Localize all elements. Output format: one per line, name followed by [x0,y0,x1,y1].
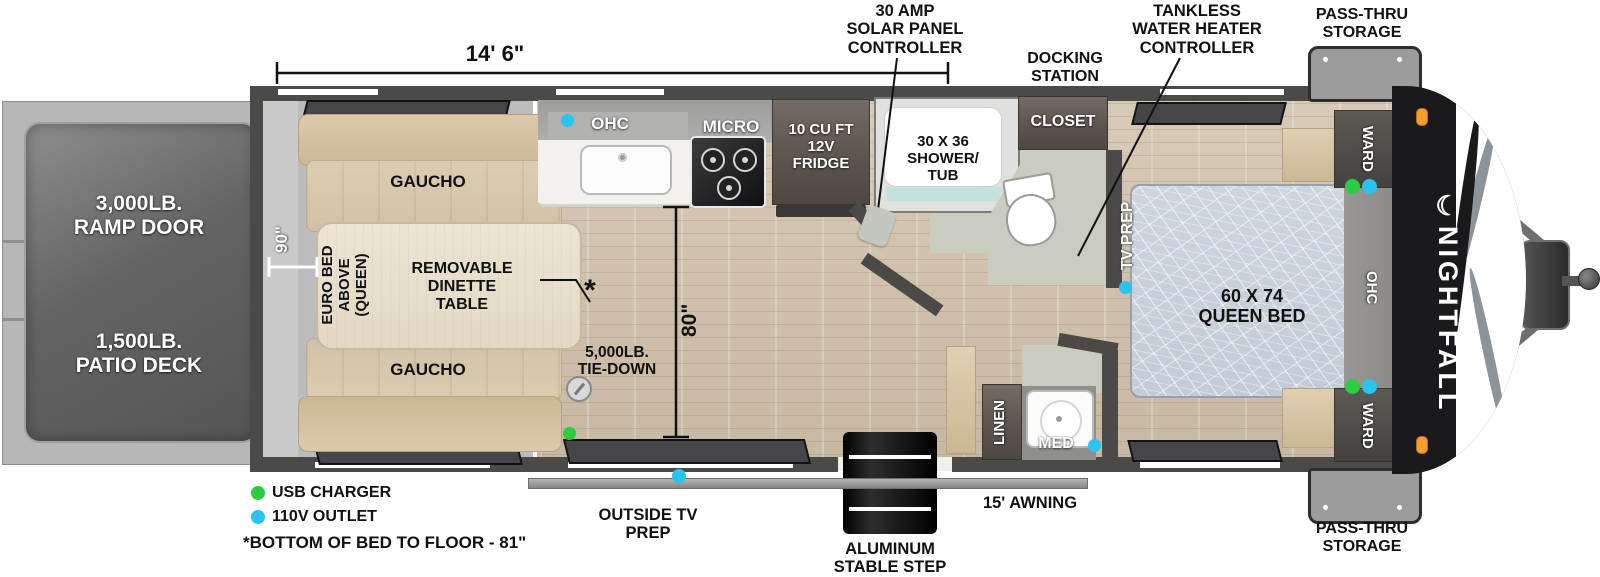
pass-thru-top-label: PASS-THRU STORAGE [1290,6,1434,42]
usb-charger-dot [1345,379,1360,394]
legend-usb-label: USB CHARGER [272,484,412,502]
legend-usb-dot-icon [251,486,265,500]
dinette-footnote-leader [540,280,590,302]
usb-charger-dot [1345,179,1360,194]
110v-outlet-dot [1088,439,1101,452]
legend-outlet-dot-icon [251,510,265,524]
110v-outlet-dot [672,469,686,483]
legend-outlet-label: 110V OUTLET [272,508,412,526]
tankless-callout: TANKLESS WATER HEATER CONTROLLER [1118,2,1276,57]
110v-outlet-dot [1119,281,1132,294]
floorplan-diagram: 3,000LB. RAMP DOOR 1,500LB. PATIO DECK G… [0,0,1600,577]
usb-charger-dot [563,427,576,440]
outside-tv-label: OUTSIDE TV PREP [578,506,718,543]
solar-leader-line [877,58,897,218]
docking-station-label: DOCKING STATION [1005,50,1125,86]
overall-length-label: 14' 6" [420,42,570,67]
solar-callout: 30 AMP SOLAR PANEL CONTROLLER [828,2,982,57]
pass-thru-bottom-label: PASS-THRU STORAGE [1290,520,1434,556]
tankless-leader-line [1078,58,1180,256]
step-label: ALUMINUM STABLE STEP [818,540,962,577]
awning-label: 15' AWNING [962,494,1098,512]
overall-length-dimension [277,62,948,84]
110v-outlet-dot [1362,379,1377,394]
interior-clearance-label: 80" [678,292,702,348]
110v-outlet-dot [1362,179,1377,194]
dimension-lines [0,0,1600,577]
garage-depth-label: 90" [272,218,291,262]
bed-height-footnote: *BOTTOM OF BED TO FLOOR - 81" [243,533,543,552]
110v-outlet-dot [561,114,574,127]
